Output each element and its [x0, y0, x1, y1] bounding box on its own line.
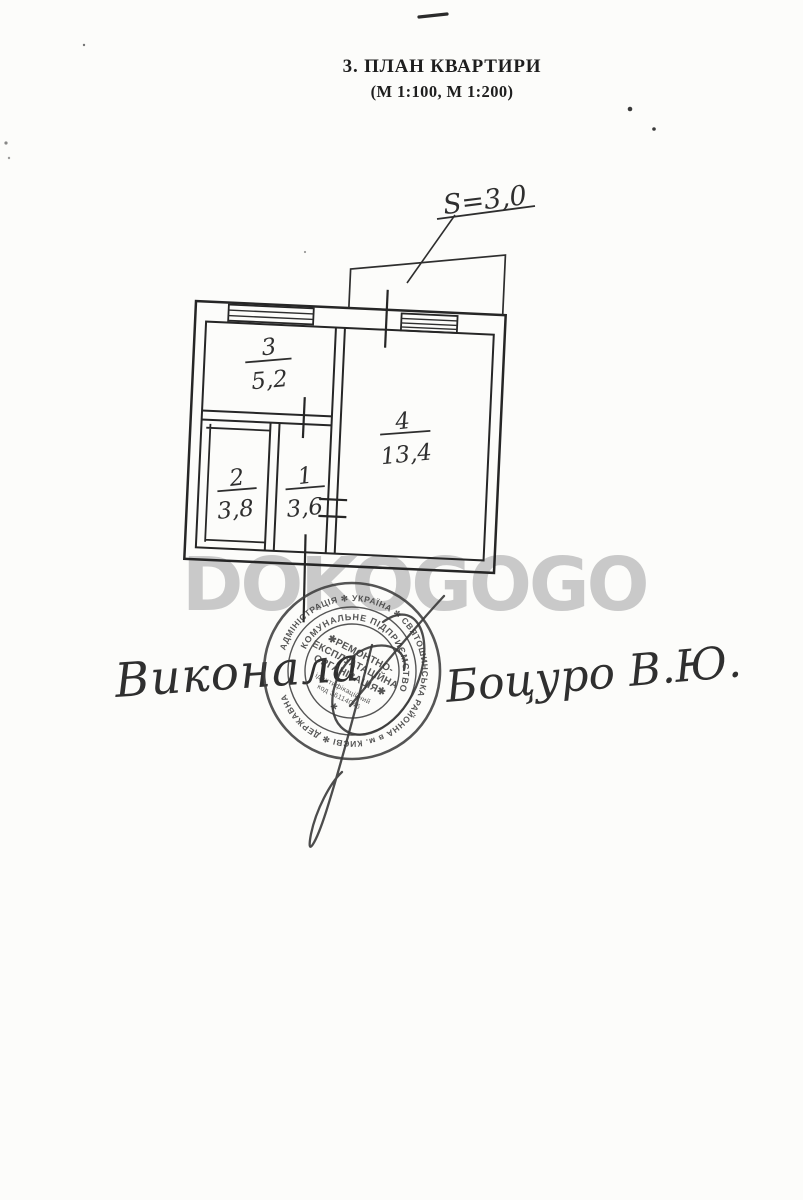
floor-plan-drawing: 3 5,2 4 13,4 2 3,8 1 3,6 S=3,0: [0, 0, 803, 1200]
room-2-area: 3,8: [216, 496, 255, 525]
room-3-label: 3 5,2: [244, 333, 293, 397]
window-room4: [401, 313, 458, 333]
room-3-number: 3: [260, 334, 277, 361]
annotation-leader-line: [407, 215, 455, 283]
room-2-label: 2 3,8: [215, 463, 258, 526]
balcony-area-annotation: S=3,0: [407, 180, 535, 283]
balcony-door-tick: [385, 290, 388, 348]
scanned-document-page: 3. ПЛАН КВАРТИРИ (М 1:100, М 1:200) DOKO…: [0, 0, 803, 1200]
room-1-area: 3,6: [285, 494, 324, 523]
kitchen-door-tick: [303, 397, 305, 438]
room-4-number: 4: [393, 408, 411, 436]
balcony-outline: [349, 248, 506, 315]
door-ticks: [295, 286, 388, 625]
scan-specks: [4, 14, 655, 253]
apartment-plan: 3 5,2 4 13,4 2 3,8 1 3,6: [182, 241, 509, 631]
room-1-label: 1 3,6: [284, 461, 327, 524]
room-2-number: 2: [227, 464, 245, 492]
room-3-area: 5,2: [250, 366, 289, 395]
room-4-area: 13,4: [380, 440, 433, 471]
handwriting-name: Боцуро В.Ю.: [443, 636, 744, 713]
window-room3: [228, 305, 314, 325]
room-4-label: 4 13,4: [378, 407, 435, 473]
room-1-number: 1: [296, 463, 313, 490]
